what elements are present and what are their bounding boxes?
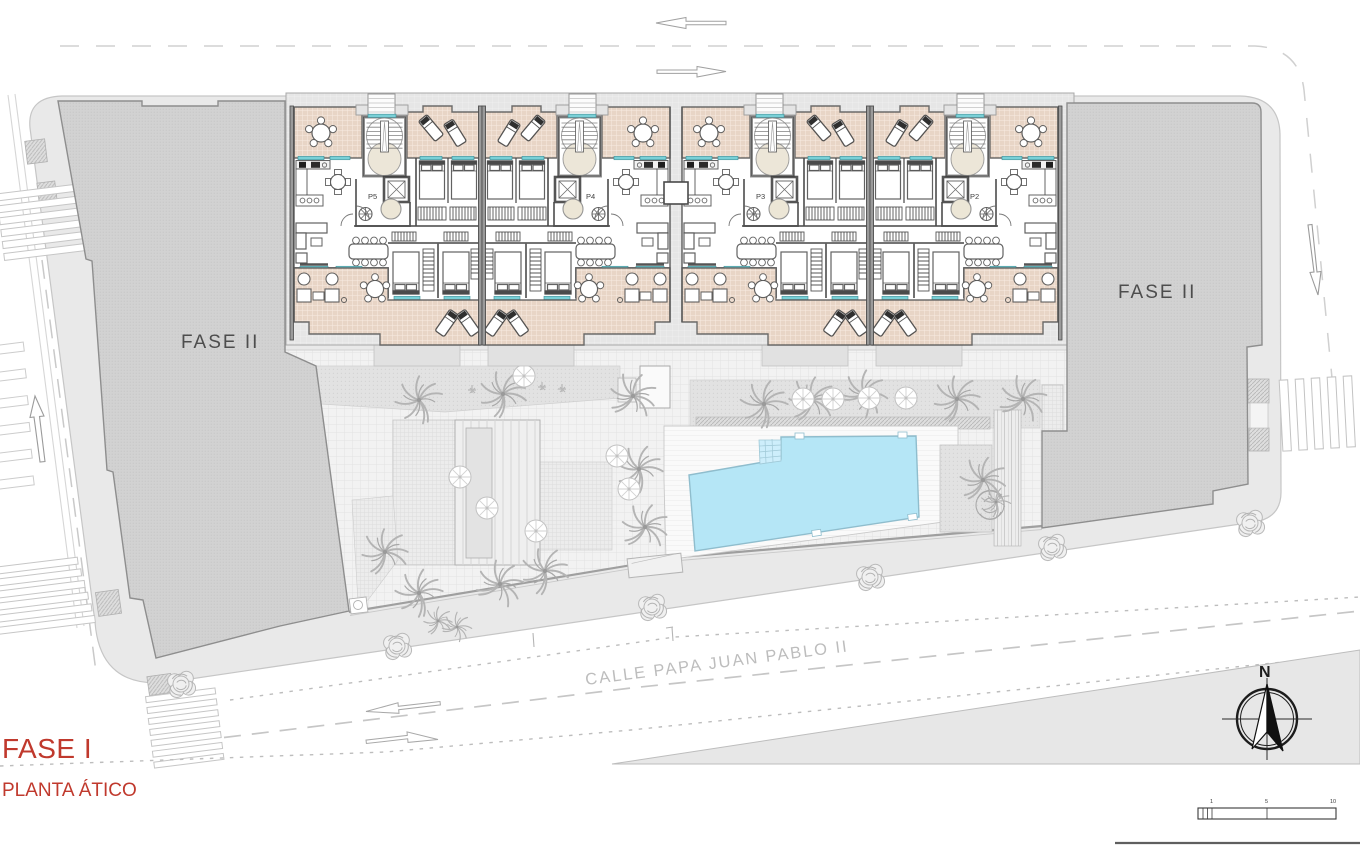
svg-text:P4: P4 [586, 192, 595, 201]
svg-text:FASE II: FASE II [181, 332, 259, 353]
svg-text:P5: P5 [368, 192, 377, 201]
svg-text:N: N [1259, 664, 1271, 681]
svg-text:10: 10 [1330, 799, 1336, 805]
svg-text:PLANTA ÁTICO: PLANTA ÁTICO [2, 780, 137, 801]
svg-text:1: 1 [1210, 799, 1213, 805]
svg-text:P3: P3 [756, 192, 765, 201]
svg-text:FASE II: FASE II [1118, 282, 1196, 303]
svg-text:5: 5 [1265, 799, 1268, 805]
svg-text:P2: P2 [970, 192, 979, 201]
svg-text:FASE I: FASE I [2, 733, 92, 764]
